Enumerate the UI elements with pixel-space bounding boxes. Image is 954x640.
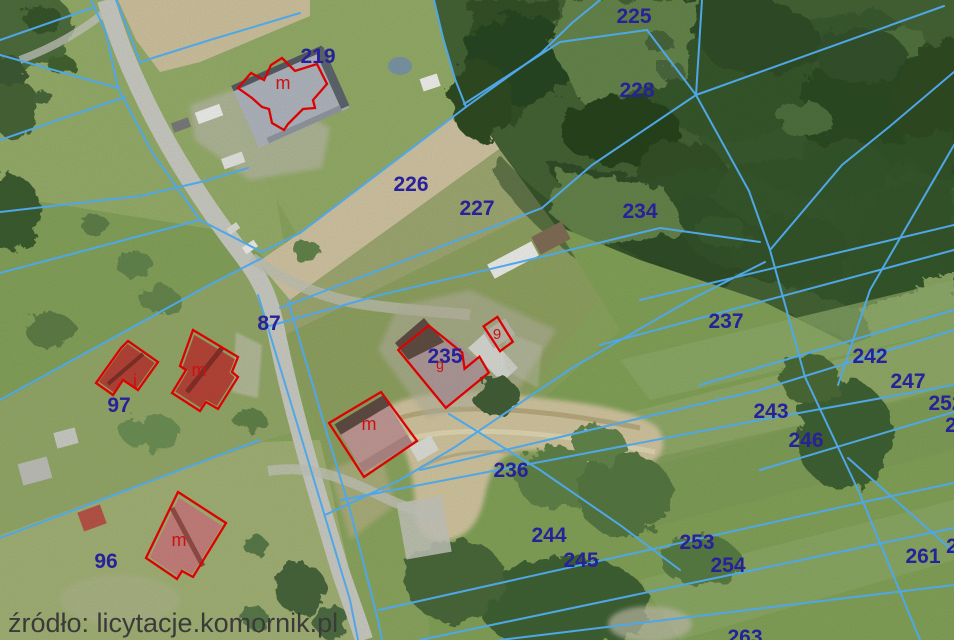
svg-text:245: 245 [563,549,598,572]
svg-text:242: 242 [852,345,887,368]
svg-text:243: 243 [753,400,788,423]
svg-text:228: 228 [619,79,654,102]
svg-text:97: 97 [107,394,130,417]
svg-text:253: 253 [679,531,714,554]
svg-text:247: 247 [890,370,925,393]
svg-text:2: 2 [945,414,954,437]
svg-text:235: 235 [427,345,462,368]
svg-text:i: i [133,371,137,391]
svg-text:254: 254 [710,554,745,577]
svg-text:252: 252 [928,392,954,415]
svg-text:9: 9 [493,326,501,343]
svg-text:m: m [192,360,207,380]
svg-text:m: m [172,530,187,550]
svg-text:g: g [436,356,444,372]
svg-text:263: 263 [727,626,762,640]
svg-text:236: 236 [493,459,528,482]
svg-text:226: 226 [393,173,428,196]
svg-text:219: 219 [300,45,335,68]
svg-text:2: 2 [946,535,954,558]
svg-text:234: 234 [622,200,657,223]
svg-text:225: 225 [616,5,651,28]
svg-text:m: m [362,414,377,434]
svg-text:96: 96 [94,550,117,573]
svg-text:244: 244 [531,524,566,547]
svg-text:246: 246 [788,429,823,452]
svg-text:m: m [276,73,291,93]
svg-text:227: 227 [459,197,494,220]
svg-text:87: 87 [257,312,280,335]
svg-text:237: 237 [708,310,743,333]
svg-text:261: 261 [905,545,940,568]
svg-text:źródło: licytacje.komornik.pl: źródło: licytacje.komornik.pl [8,608,338,638]
